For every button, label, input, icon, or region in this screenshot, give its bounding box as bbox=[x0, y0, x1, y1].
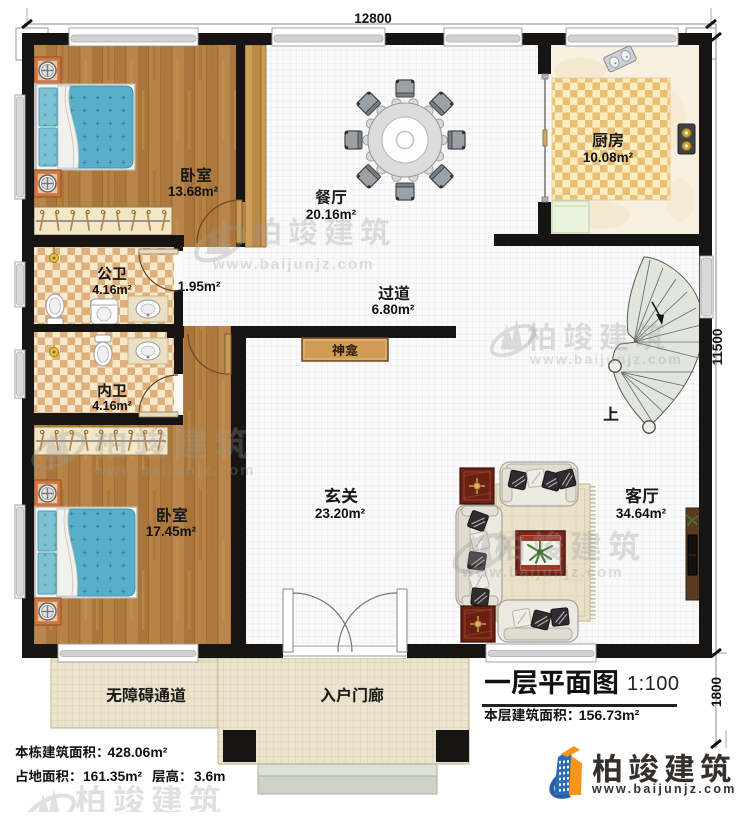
svg-text:www.baijunjz.com: www.baijunjz.com bbox=[529, 351, 683, 367]
svg-text:1:100: 1:100 bbox=[627, 673, 680, 695]
svg-text:1800: 1800 bbox=[709, 677, 724, 707]
svg-text:12800: 12800 bbox=[354, 11, 392, 26]
svg-text:156.73m²: 156.73m² bbox=[579, 708, 640, 724]
svg-text:13.68m²: 13.68m² bbox=[168, 184, 219, 199]
svg-text:161.35m²: 161.35m² bbox=[83, 769, 142, 784]
svg-text:10.08m²: 10.08m² bbox=[583, 150, 634, 165]
svg-text:3.6m: 3.6m bbox=[194, 769, 225, 784]
svg-text:www.baijunjz.com: www.baijunjz.com bbox=[591, 782, 737, 796]
svg-text:4.16m²: 4.16m² bbox=[92, 283, 132, 297]
svg-text:17.45m²: 17.45m² bbox=[146, 524, 197, 539]
svg-text:www.baijunjz.com: www.baijunjz.com bbox=[461, 564, 623, 581]
svg-text:www.baijunjz.com: www.baijunjz.com bbox=[212, 256, 374, 273]
svg-text:4.16m²: 4.16m² bbox=[92, 399, 132, 413]
svg-text:428.06m²: 428.06m² bbox=[108, 744, 168, 760]
svg-text:34.64m²: 34.64m² bbox=[616, 506, 667, 521]
svg-text:1.95m²: 1.95m² bbox=[178, 279, 221, 294]
svg-text:11500: 11500 bbox=[710, 329, 725, 366]
svg-text:6.80m²: 6.80m² bbox=[372, 302, 415, 317]
svg-text:23.20m²: 23.20m² bbox=[315, 506, 366, 521]
svg-text:www.baijunjz.com: www.baijunjz.com bbox=[93, 462, 255, 479]
